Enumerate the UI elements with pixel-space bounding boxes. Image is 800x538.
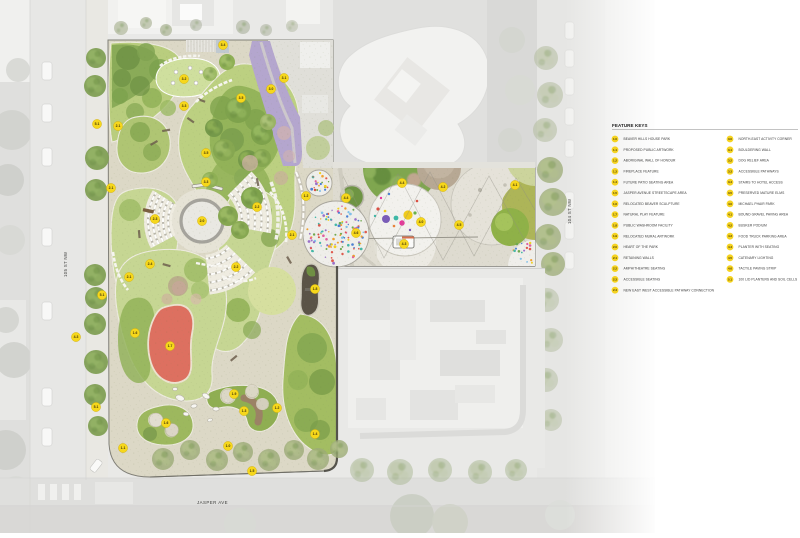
- svg-text:AMPHITHEATRE SEATING: AMPHITHEATRE SEATING: [624, 267, 666, 271]
- svg-text:4.0: 4.0: [728, 202, 732, 206]
- svg-text:104 ST NW: 104 ST NW: [567, 198, 572, 224]
- svg-text:3.4: 3.4: [221, 43, 226, 47]
- svg-text:1.4: 1.4: [613, 180, 617, 184]
- svg-text:4.6: 4.6: [354, 231, 359, 235]
- svg-text:4.1: 4.1: [728, 213, 732, 217]
- svg-text:3.1: 3.1: [728, 148, 732, 152]
- svg-text:4.1: 4.1: [513, 183, 518, 187]
- svg-text:2.0: 2.0: [613, 245, 617, 249]
- svg-text:1.7: 1.7: [613, 213, 617, 217]
- svg-text:1.0: 1.0: [226, 444, 231, 448]
- svg-text:JASPER AVENUE STREETSCAPE ARE: JASPER AVENUE STREETSCAPE AREA: [624, 191, 688, 195]
- svg-text:1.2: 1.2: [275, 406, 280, 410]
- svg-text:PLANTER WITH SEATING: PLANTER WITH SEATING: [739, 245, 780, 249]
- svg-text:5.1: 5.1: [95, 122, 100, 126]
- svg-text:1.2: 1.2: [304, 194, 309, 198]
- svg-text:4.2: 4.2: [728, 223, 732, 227]
- svg-text:1.6: 1.6: [133, 331, 138, 335]
- svg-text:2.1: 2.1: [116, 124, 121, 128]
- svg-text:2.1: 2.1: [613, 256, 617, 260]
- svg-text:RELOCATED BEAVER SCULPTURE: RELOCATED BEAVER SCULPTURE: [624, 202, 681, 206]
- svg-text:TACTILE PAVING STRIP: TACTILE PAVING STRIP: [739, 267, 778, 271]
- svg-text:4.6: 4.6: [728, 267, 732, 271]
- svg-text:1.2: 1.2: [613, 159, 617, 163]
- svg-text:4.3: 4.3: [74, 335, 79, 339]
- svg-text:3.2: 3.2: [728, 159, 732, 163]
- svg-text:BOUND GRAVEL PAVING AREA: BOUND GRAVEL PAVING AREA: [739, 213, 789, 217]
- svg-text:1.5: 1.5: [250, 469, 255, 473]
- svg-text:2.2: 2.2: [613, 267, 617, 271]
- svg-text:2.2: 2.2: [234, 265, 239, 269]
- svg-text:FUTURE PATIO SEATING AREA: FUTURE PATIO SEATING AREA: [624, 180, 675, 184]
- svg-text:4.3: 4.3: [728, 234, 732, 238]
- svg-text:RELOCATED MURAL ARTWORK: RELOCATED MURAL ARTWORK: [624, 234, 676, 238]
- svg-text:3.4: 3.4: [728, 180, 732, 184]
- svg-text:NEW EAST WEST ACCESSIBLE PATHW: NEW EAST WEST ACCESSIBLE PATHWAY CONNECT…: [624, 288, 715, 292]
- svg-text:3.5: 3.5: [239, 96, 244, 100]
- svg-text:5.1: 5.1: [728, 277, 732, 281]
- svg-text:1.6: 1.6: [613, 202, 617, 206]
- svg-text:2.3: 2.3: [153, 217, 158, 221]
- svg-text:NORTH-EAST ACTIVITY CORNER: NORTH-EAST ACTIVITY CORNER: [739, 137, 793, 141]
- svg-text:HEART OF THE PARK: HEART OF THE PARK: [624, 245, 659, 249]
- svg-text:3.2: 3.2: [182, 77, 187, 81]
- svg-text:105 ST NW: 105 ST NW: [63, 251, 68, 277]
- svg-text:PROPOSED PUBLIC ARTWORK: PROPOSED PUBLIC ARTWORK: [624, 148, 675, 152]
- svg-text:3.0: 3.0: [728, 137, 732, 141]
- svg-text:PUBLIC WASHROOM FACILITY: PUBLIC WASHROOM FACILITY: [624, 224, 674, 228]
- svg-text:3.5: 3.5: [204, 151, 209, 155]
- svg-text:2.0: 2.0: [200, 219, 205, 223]
- svg-text:ACCESSIBLE SEATING: ACCESSIBLE SEATING: [624, 278, 661, 282]
- svg-text:2.1: 2.1: [127, 275, 132, 279]
- svg-text:1.3: 1.3: [613, 169, 617, 173]
- svg-text:1.1: 1.1: [613, 148, 617, 152]
- svg-text:1.9: 1.9: [232, 392, 237, 396]
- svg-text:ABORIGINAL WALL OF HONOUR: ABORIGINAL WALL OF HONOUR: [624, 159, 677, 163]
- svg-text:3.5: 3.5: [728, 191, 732, 195]
- svg-text:FEATURE KEYS: FEATURE KEYS: [612, 123, 648, 128]
- svg-text:5.1: 5.1: [94, 405, 99, 409]
- svg-text:1.0: 1.0: [613, 137, 617, 141]
- svg-text:4.3: 4.3: [402, 242, 407, 246]
- svg-text:BEAVER HILLS HOUSE PARK: BEAVER HILLS HOUSE PARK: [624, 137, 671, 141]
- svg-text:PRESERVED MATURE ELMS: PRESERVED MATURE ELMS: [739, 191, 786, 195]
- svg-text:2.4: 2.4: [148, 262, 153, 266]
- svg-text:1.3: 1.3: [242, 409, 247, 413]
- svg-text:1.7: 1.7: [168, 344, 173, 348]
- svg-text:2.2: 2.2: [255, 205, 260, 209]
- svg-text:BUSKER PODIUM: BUSKER PODIUM: [739, 224, 768, 228]
- svg-text:1.8: 1.8: [313, 287, 318, 291]
- svg-text:1.8: 1.8: [613, 223, 617, 227]
- svg-text:4.4: 4.4: [728, 245, 732, 249]
- svg-text:2.1: 2.1: [109, 186, 114, 190]
- svg-text:1.4: 1.4: [313, 432, 318, 436]
- svg-text:1.9: 1.9: [613, 234, 617, 238]
- svg-text:FOOD TRUCK PARKING AREA: FOOD TRUCK PARKING AREA: [739, 234, 788, 238]
- svg-text:3.0: 3.0: [269, 87, 274, 91]
- svg-text:1.5: 1.5: [613, 191, 617, 195]
- svg-text:4.2: 4.2: [441, 185, 446, 189]
- svg-text:ACCESSIBLE PATHWAYS: ACCESSIBLE PATHWAYS: [739, 170, 780, 174]
- svg-text:NATURAL PLAY FEATURE: NATURAL PLAY FEATURE: [624, 213, 666, 217]
- svg-text:2.3: 2.3: [613, 277, 617, 281]
- svg-text:2.1: 2.1: [290, 233, 295, 237]
- svg-text:3.3: 3.3: [728, 169, 732, 173]
- svg-text:RETAINING WALLS: RETAINING WALLS: [624, 256, 655, 260]
- svg-text:STAIRS TO HOTEL ACCESS: STAIRS TO HOTEL ACCESS: [739, 180, 784, 184]
- svg-text:3.3: 3.3: [204, 180, 209, 184]
- svg-text:2.4: 2.4: [613, 288, 617, 292]
- svg-text:1.1: 1.1: [121, 446, 126, 450]
- svg-text:MICHAEL PHAIR PARK: MICHAEL PHAIR PARK: [739, 202, 776, 206]
- svg-text:DOG RELIEF AREA: DOG RELIEF AREA: [739, 159, 770, 163]
- svg-text:CATENARY LIGHTING: CATENARY LIGHTING: [739, 256, 774, 260]
- svg-text:1.6: 1.6: [164, 421, 169, 425]
- svg-text:JASPER AVE: JASPER AVE: [197, 500, 228, 505]
- svg-text:4.4: 4.4: [344, 196, 349, 200]
- svg-text:BOULDERING WALL: BOULDERING WALL: [739, 148, 771, 152]
- svg-text:3.1: 3.1: [282, 76, 287, 80]
- svg-text:4.5: 4.5: [728, 256, 732, 260]
- svg-text:5.1: 5.1: [100, 293, 105, 297]
- svg-text:4.5: 4.5: [457, 223, 462, 227]
- svg-text:100 LID PLANTERS AND SOIL CELL: 100 LID PLANTERS AND SOIL CELLS: [739, 278, 799, 282]
- svg-text:4.4: 4.4: [400, 181, 405, 185]
- svg-text:3.3: 3.3: [182, 104, 187, 108]
- svg-text:FIREPLACE FEATURE: FIREPLACE FEATURE: [624, 170, 660, 174]
- svg-text:4.0: 4.0: [419, 220, 424, 224]
